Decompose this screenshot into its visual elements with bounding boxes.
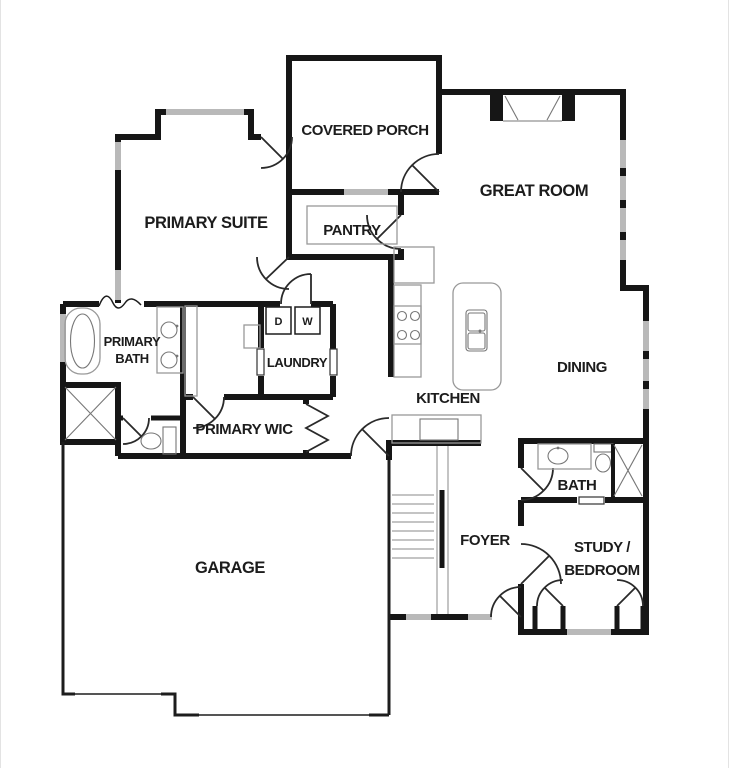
- label-washer: W: [302, 316, 313, 328]
- door-study-closet-right: [617, 580, 643, 606]
- floor-plan-page: COVERED PORCH GREAT ROOM PRIMARY SUITE P…: [0, 0, 729, 768]
- primary-bath-fixtures: [65, 307, 183, 454]
- room-label-great-room: GREAT ROOM: [480, 182, 588, 200]
- shower-icon: [614, 445, 642, 496]
- window-dining: [643, 321, 649, 409]
- room-label-study-1: STUDY /: [574, 539, 631, 556]
- room-label-garage: GARAGE: [195, 559, 265, 577]
- room-label-primary-suite: PRIMARY SUITE: [144, 214, 268, 232]
- vanity: [538, 444, 591, 469]
- window-primary-suite-left-lower: [115, 270, 121, 300]
- sink-icon: [161, 352, 177, 368]
- stair-treads: [392, 495, 434, 558]
- cabinet-run: [185, 306, 197, 396]
- window-study: [567, 629, 611, 635]
- toilet-icon: [594, 444, 613, 452]
- room-label-primary-wic: PRIMARY WIC: [195, 421, 293, 438]
- room-label-laundry: LAUNDRY: [267, 355, 328, 370]
- toilet-icon: [141, 433, 161, 449]
- door-laundry: [281, 274, 311, 304]
- sink-icon: [548, 448, 568, 464]
- window-primary-suite-top: [166, 109, 244, 115]
- door-garage-entry: [351, 418, 389, 456]
- window-primary-suite-left-upper: [115, 142, 121, 170]
- room-label-primary-bath-2: BATH: [115, 351, 149, 366]
- window-foyer-left: [406, 614, 431, 620]
- door-hall-bath: [521, 468, 553, 500]
- sink-icon: [161, 322, 177, 338]
- room-label-kitchen: KITCHEN: [416, 390, 480, 407]
- pocket-door-bath: [579, 497, 604, 504]
- room-label-primary-bath-1: PRIMARY: [104, 334, 161, 349]
- window-pantry-porch: [344, 189, 388, 195]
- window-foyer-right: [468, 614, 492, 620]
- double-doors-wic-hall: [306, 404, 328, 452]
- bench-cubby: [244, 325, 260, 348]
- floor-plan-drawing: COVERED PORCH GREAT ROOM PRIMARY SUITE P…: [1, 0, 729, 768]
- door-water-closet: [123, 418, 149, 444]
- pocket-door-laundry-right: [330, 349, 337, 375]
- door-front-entry: [491, 587, 521, 617]
- room-label-covered-porch: COVERED PORCH: [301, 122, 428, 139]
- fireplace: [490, 95, 575, 121]
- room-label-bath: BATH: [558, 477, 597, 494]
- kitchen-fixtures: [307, 206, 501, 443]
- door-suite-hall: [257, 257, 289, 289]
- stairs: [392, 446, 448, 614]
- door-study-closet-left: [537, 580, 563, 606]
- garage-walls: [63, 442, 389, 715]
- kitchen-island: [453, 283, 501, 390]
- door-study: [521, 544, 561, 584]
- garage-door-lines: [75, 694, 369, 715]
- room-label-foyer: FOYER: [460, 532, 510, 549]
- label-dryer: D: [275, 316, 283, 328]
- door-covered-porch: [401, 154, 439, 192]
- shower-icon: [65, 387, 116, 440]
- room-label-study-2: BEDROOM: [564, 562, 640, 579]
- pocket-door-laundry-left: [257, 349, 264, 375]
- mudroom-builtins: [185, 306, 260, 396]
- room-label-pantry: PANTRY: [323, 222, 381, 239]
- room-label-dining: DINING: [557, 359, 607, 376]
- double-vanity: [157, 307, 183, 373]
